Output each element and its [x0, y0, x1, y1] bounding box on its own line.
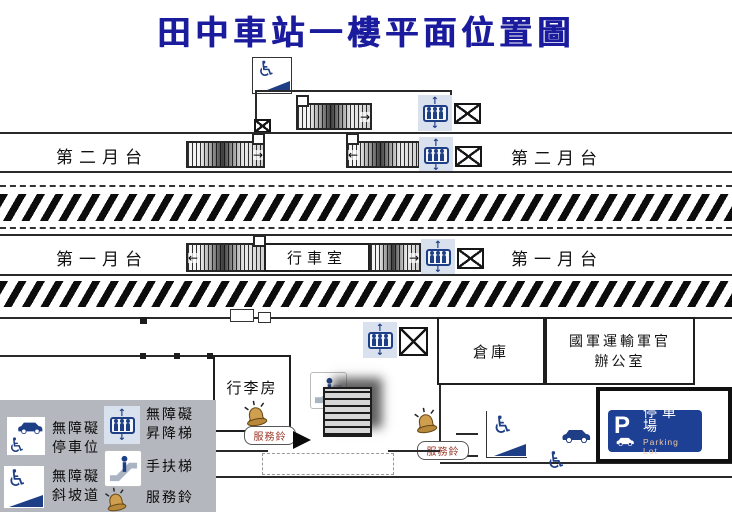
accessible-ramp-icon: ♿ [486, 411, 527, 458]
page-title: 田中車站一樓平面位置圖 [0, 6, 732, 54]
operations-room: 行車室 [264, 243, 370, 272]
accessible-parking-icon: ♿ [7, 417, 45, 455]
ramp-wedge [9, 495, 43, 507]
escalator-icon [104, 450, 142, 487]
wall [255, 90, 452, 92]
military-office-room: 國軍運輸軍官 辦公室 [545, 317, 695, 385]
legend-label: 無障礙 斜坡道 [52, 468, 100, 506]
platform2-right-label: 第二月台 [511, 144, 603, 169]
door-mark [456, 433, 478, 435]
elevator-shaft-icon [454, 103, 481, 124]
ramp-wedge [494, 444, 526, 456]
accessible-ramp-icon: ♿ [4, 466, 44, 508]
stairs-platform2 [346, 141, 420, 168]
platform-edge [0, 234, 732, 236]
elevator-cab [423, 105, 448, 122]
platform1-right-label: 第一月台 [511, 245, 603, 270]
elevator-icon: ↑ ↓ [421, 239, 455, 275]
track-line [0, 227, 732, 229]
entrance-porch [262, 453, 394, 475]
column [174, 353, 180, 359]
elevator-icon: ↑ ↓ [419, 137, 453, 173]
legend-label: 無障礙 昇降梯 [146, 406, 194, 444]
legend-label: 手扶梯 [146, 458, 194, 477]
direction-arrow [293, 431, 311, 449]
elevator-cab [426, 249, 451, 266]
elevator-cab [424, 147, 449, 164]
wall-fixture [258, 312, 271, 323]
platform-edge [0, 171, 732, 173]
elevator-shaft-icon [399, 327, 428, 356]
legend-label: 無障礙 停車位 [52, 420, 100, 458]
elevator-shaft-icon [455, 146, 482, 167]
elevator-shaft-icon [254, 119, 271, 133]
elevator-icon: ↑ ↓ [418, 95, 452, 131]
railway-track [0, 281, 732, 307]
elevator-shaft-icon [457, 248, 484, 269]
elevator-icon: ↑ ↓ [363, 322, 397, 358]
stairs-platform2 [186, 141, 265, 168]
service-bell-callout: 服務鈴 [244, 426, 296, 445]
legend-label: 服務鈴 [146, 489, 194, 508]
main-staircase [323, 387, 372, 437]
wall-fixture [230, 309, 254, 322]
platform-edge [0, 274, 732, 276]
platform-edge [0, 132, 732, 134]
stairs-overpass [296, 103, 372, 130]
service-bell-icon [101, 484, 132, 519]
legend-panel: ♿ 無障礙 停車位 ↑ ↓ 無障礙 昇降梯 ♿ 無障礙 斜坡道 [0, 400, 216, 512]
platform1-left-label: 第一月台 [56, 245, 148, 270]
accessible-ramp-icon: ♿ [252, 57, 292, 94]
accessible-parking-icon: ♿ [546, 427, 592, 473]
accessible-elevator-icon: ↑ ↓ [104, 406, 140, 444]
warehouse-room: 倉庫 [437, 317, 545, 385]
interior-wall [0, 355, 215, 357]
elevator-cab [110, 417, 135, 434]
elevator-cab [368, 332, 393, 349]
station-floor-plan: 田中車站一樓平面位置圖 ♿ ↑ ↓ 第二月台 ↑ ↓ 第二月台 第一月台 行車室… [0, 0, 732, 512]
railway-track [0, 194, 732, 221]
column [140, 353, 146, 359]
column [140, 317, 147, 324]
parking-p-icon: P [614, 416, 636, 446]
building-wall [213, 450, 268, 452]
platform2-left-label: 第二月台 [56, 143, 148, 168]
service-bell-icon [409, 404, 442, 441]
track-line [0, 185, 732, 187]
stairs-platform1 [186, 243, 266, 272]
stairs-platform1 [369, 243, 421, 272]
building-wall [388, 450, 440, 452]
parking-lot-sign: P 停車場 Parking Lot [608, 410, 702, 452]
